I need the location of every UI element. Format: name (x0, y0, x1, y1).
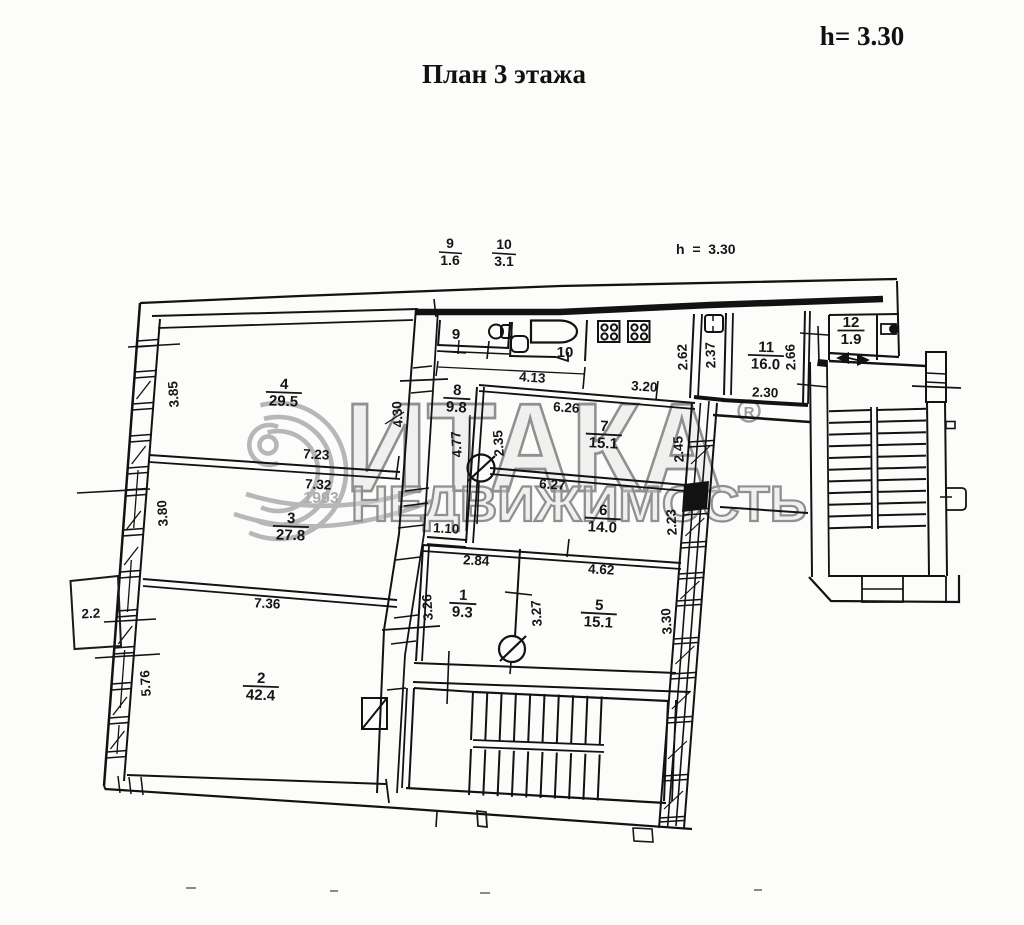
svg-text:27.8: 27.8 (276, 526, 306, 544)
svg-text:9.3: 9.3 (451, 603, 473, 621)
svg-text:16.0: 16.0 (751, 355, 781, 373)
svg-text:2.35: 2.35 (490, 429, 507, 457)
svg-text:2.66: 2.66 (783, 343, 799, 370)
svg-text:6: 6 (599, 502, 608, 519)
svg-text:7: 7 (600, 418, 609, 435)
svg-text:2.2: 2.2 (81, 606, 100, 622)
svg-text:1: 1 (459, 587, 468, 604)
svg-text:7.36: 7.36 (254, 595, 282, 611)
svg-text:3.27: 3.27 (528, 600, 545, 627)
svg-text:9.8: 9.8 (445, 398, 467, 416)
svg-text:1.10: 1.10 (433, 520, 460, 536)
svg-text:1.6: 1.6 (440, 252, 460, 268)
svg-text:h= 3.30: h= 3.30 (820, 21, 904, 51)
svg-text:3.1: 3.1 (494, 253, 514, 269)
svg-text:5.76: 5.76 (137, 669, 154, 697)
svg-text:2.30: 2.30 (752, 385, 779, 401)
svg-text:7.32: 7.32 (305, 476, 332, 492)
svg-text:3.26: 3.26 (419, 593, 436, 621)
svg-text:10: 10 (557, 344, 574, 361)
svg-text:15.1: 15.1 (588, 434, 618, 453)
svg-text:h = 3.30: h = 3.30 (676, 241, 736, 257)
svg-text:4: 4 (280, 376, 290, 393)
svg-text:5: 5 (595, 597, 604, 614)
svg-text:План 3 этажа: План 3 этажа (422, 59, 587, 89)
svg-text:4.77: 4.77 (448, 431, 465, 458)
svg-text:2.23: 2.23 (663, 508, 679, 536)
svg-text:42.4: 42.4 (246, 686, 276, 704)
svg-text:10: 10 (496, 236, 512, 252)
svg-text:9: 9 (446, 235, 454, 251)
svg-text:3.30: 3.30 (658, 608, 675, 635)
svg-text:3.80: 3.80 (154, 500, 171, 527)
svg-text:3: 3 (287, 510, 296, 527)
svg-text:8: 8 (453, 382, 462, 399)
svg-text:2: 2 (257, 670, 266, 687)
svg-text:12: 12 (843, 314, 860, 331)
svg-text:14.0: 14.0 (587, 518, 617, 537)
svg-text:6.27: 6.27 (539, 476, 566, 493)
svg-text:4.30: 4.30 (389, 401, 406, 428)
svg-text:6.26: 6.26 (553, 399, 581, 416)
svg-text:3.20: 3.20 (631, 378, 658, 395)
svg-text:7.23: 7.23 (303, 446, 331, 462)
svg-text:15.1: 15.1 (583, 613, 613, 632)
svg-text:1993: 1993 (303, 490, 339, 507)
svg-text:3.85: 3.85 (165, 380, 182, 408)
svg-text:1.9: 1.9 (841, 331, 862, 348)
svg-text:4.62: 4.62 (588, 561, 615, 577)
svg-text:2.45: 2.45 (670, 435, 686, 463)
svg-text:2.62: 2.62 (675, 344, 691, 371)
svg-text:11: 11 (758, 339, 774, 357)
svg-text:2.84: 2.84 (463, 552, 491, 568)
svg-text:2.37: 2.37 (703, 342, 719, 369)
svg-text:29.5: 29.5 (269, 392, 299, 410)
